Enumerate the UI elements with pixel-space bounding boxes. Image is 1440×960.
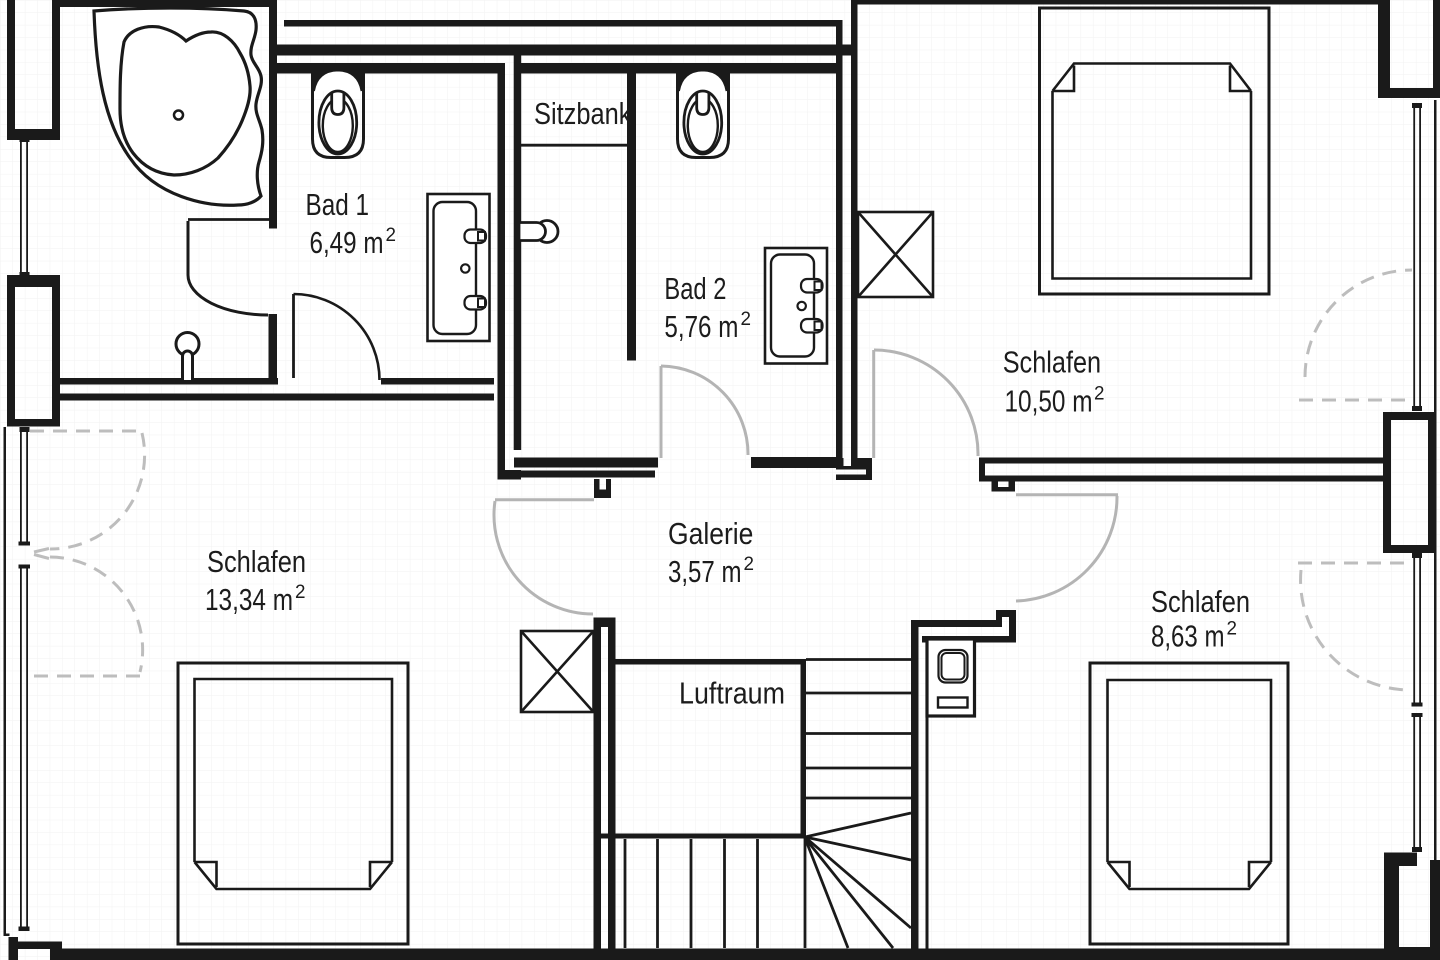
- svg-text:Schlafen: Schlafen: [1003, 345, 1101, 380]
- svg-text:Schlafen: Schlafen: [1151, 584, 1250, 619]
- svg-text:6,49 m: 6,49 m: [310, 225, 384, 260]
- svg-text:Luftraum: Luftraum: [679, 676, 785, 711]
- svg-text:2: 2: [386, 224, 397, 246]
- svg-text:8,63 m: 8,63 m: [1151, 619, 1225, 654]
- svg-text:2: 2: [744, 553, 755, 575]
- svg-text:Bad 1: Bad 1: [306, 187, 370, 222]
- svg-text:5,76 m: 5,76 m: [664, 309, 738, 344]
- svg-text:10,50 m: 10,50 m: [1005, 384, 1093, 419]
- svg-text:3,57 m: 3,57 m: [668, 554, 742, 589]
- svg-text:2: 2: [1094, 383, 1105, 405]
- svg-text:2: 2: [741, 308, 752, 330]
- svg-text:Bad 2: Bad 2: [664, 271, 726, 306]
- svg-text:2: 2: [295, 581, 306, 603]
- svg-text:Sitzbank: Sitzbank: [534, 96, 632, 131]
- svg-text:2: 2: [1227, 618, 1238, 640]
- svg-text:Schlafen: Schlafen: [207, 544, 306, 579]
- svg-text:13,34 m: 13,34 m: [205, 582, 293, 617]
- svg-text:Galerie: Galerie: [668, 516, 753, 551]
